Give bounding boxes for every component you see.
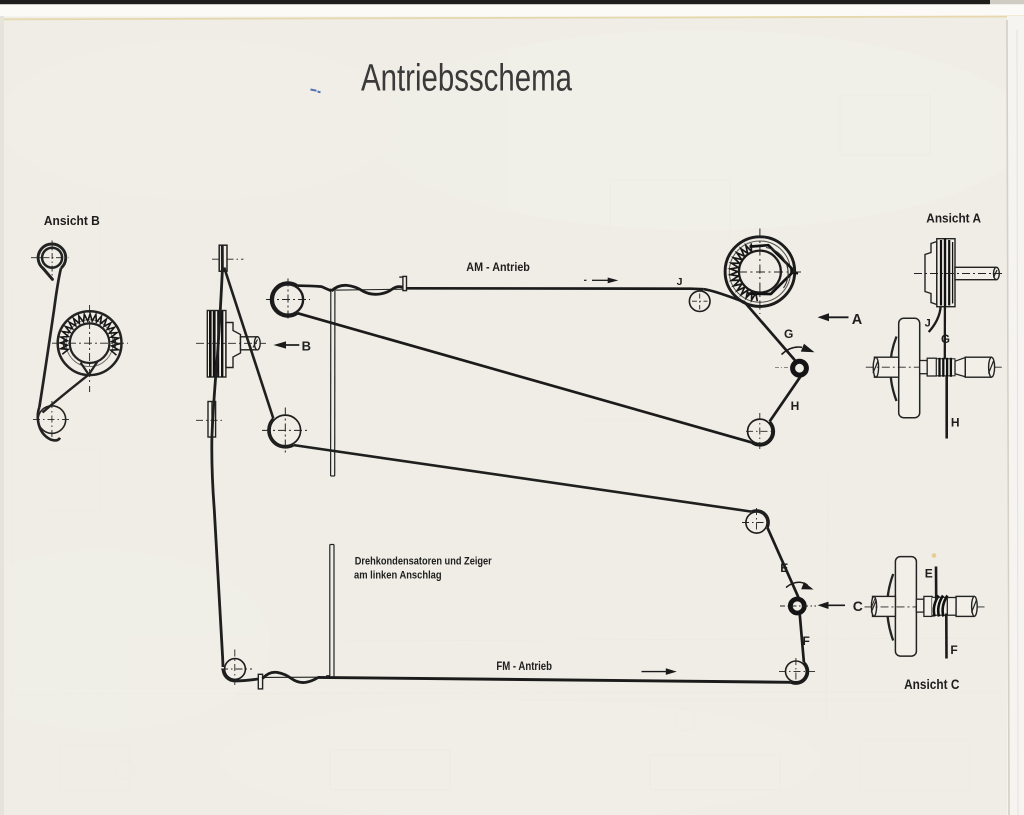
svg-text:FM - Antrieb: FM - Antrieb: [496, 659, 552, 673]
svg-text:H: H: [791, 399, 800, 413]
svg-text:Ansicht A: Ansicht A: [926, 211, 981, 226]
svg-text:H: H: [951, 415, 960, 429]
svg-text:E: E: [925, 567, 933, 581]
svg-text:F: F: [950, 643, 957, 657]
svg-text:J: J: [925, 318, 931, 330]
svg-text:C: C: [853, 598, 863, 614]
svg-text:AM - Antrieb: AM - Antrieb: [466, 260, 530, 274]
svg-text:A: A: [852, 312, 863, 328]
svg-text:Ansicht B: Ansicht B: [44, 213, 100, 228]
svg-text:am linken Anschlag: am linken Anschlag: [354, 570, 442, 582]
svg-text:Ansicht C: Ansicht C: [904, 677, 960, 692]
svg-text:Antriebsschema: Antriebsschema: [361, 58, 573, 100]
svg-text:J: J: [677, 276, 683, 288]
svg-text:G: G: [941, 334, 950, 346]
svg-text:Drehkondensatoren und Zeiger: Drehkondensatoren und Zeiger: [355, 556, 493, 568]
svg-text:G: G: [784, 327, 793, 341]
svg-text:B: B: [302, 338, 311, 353]
